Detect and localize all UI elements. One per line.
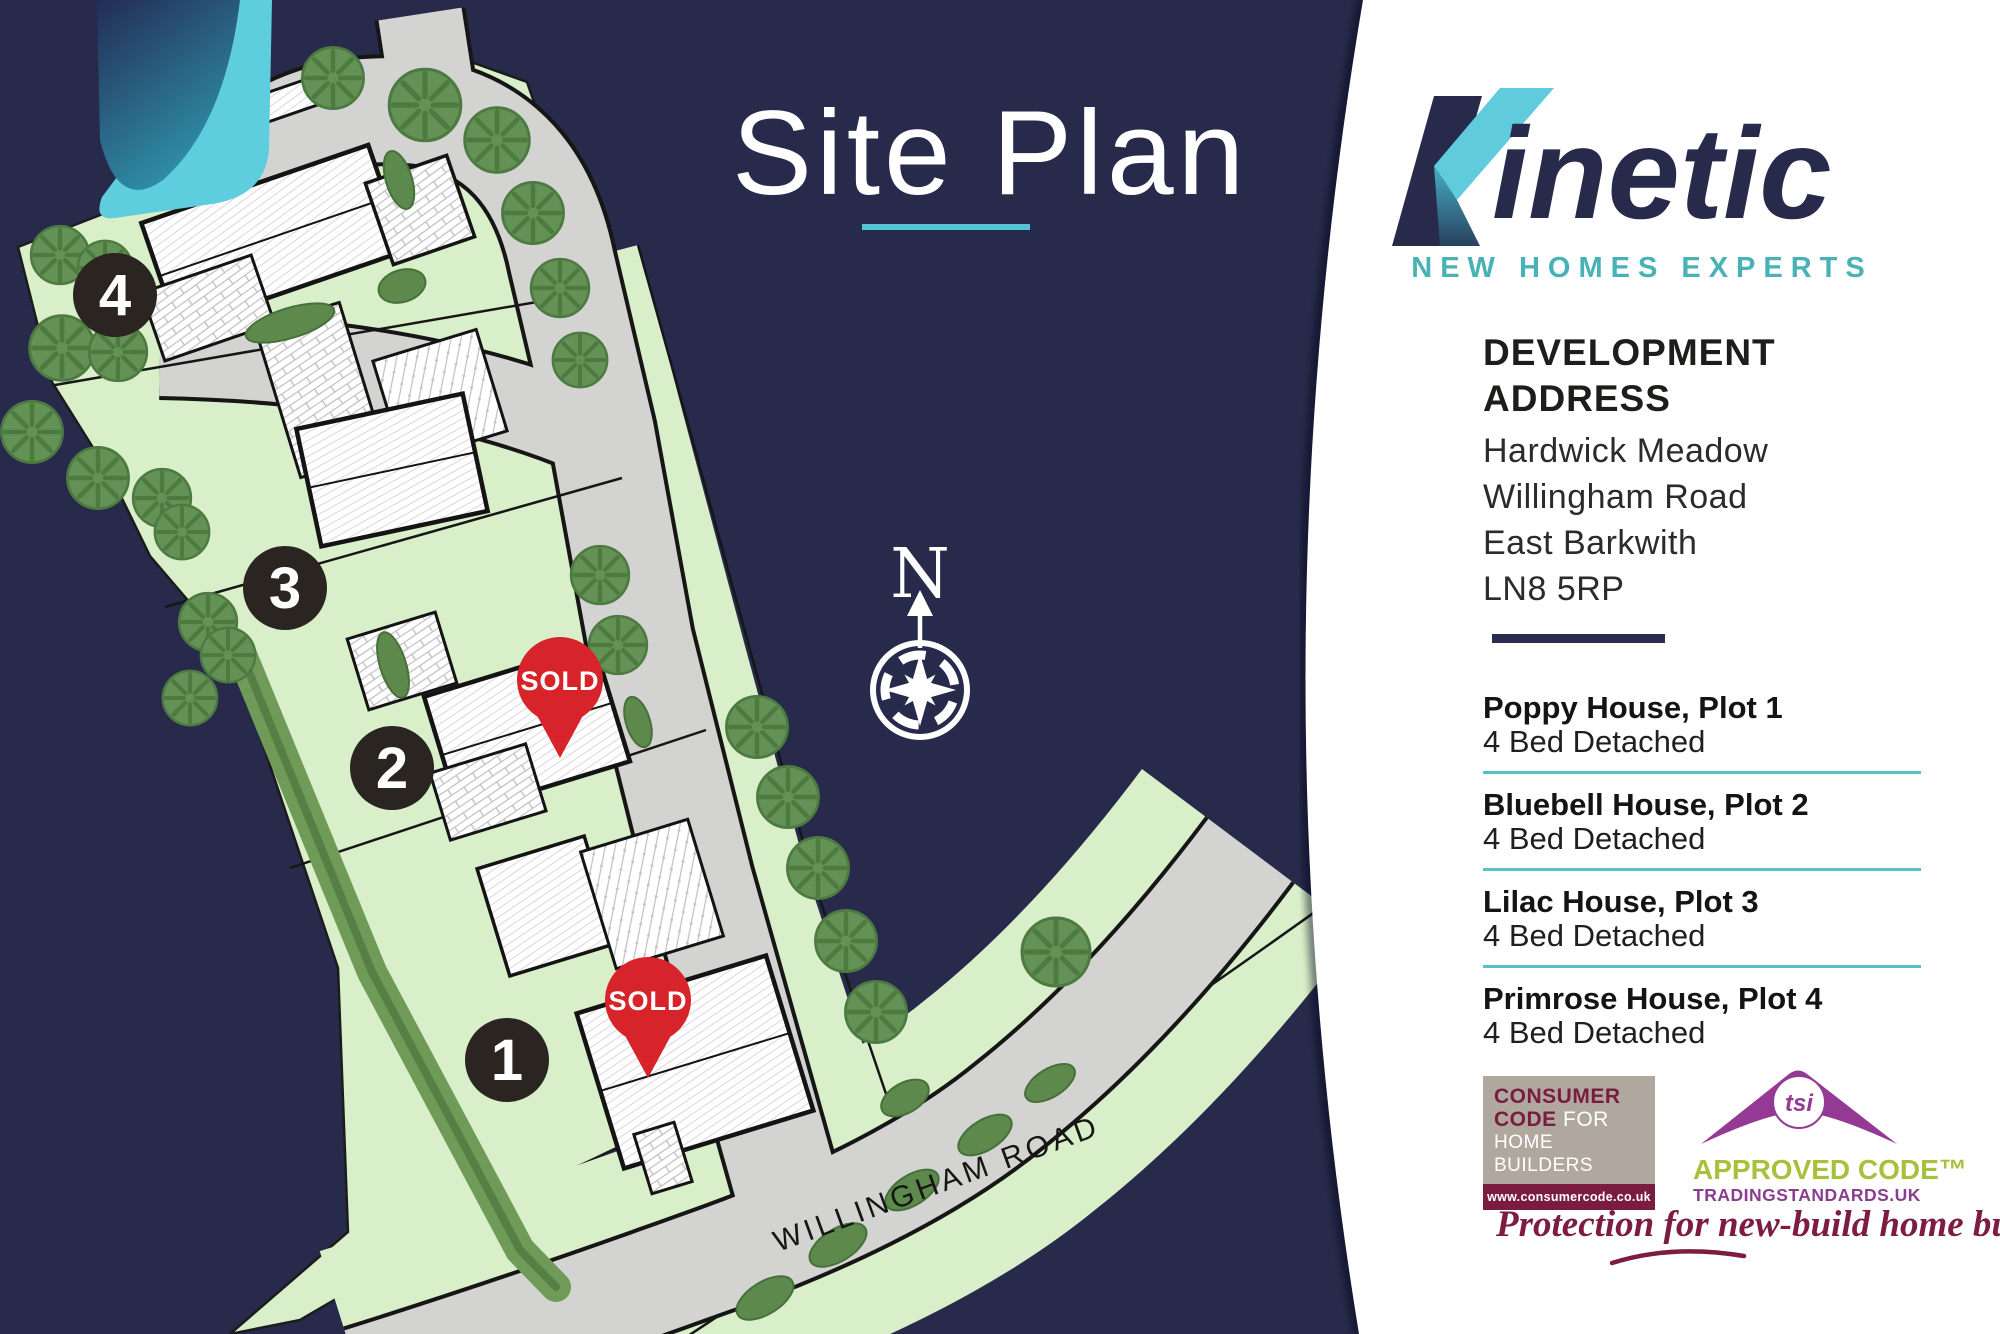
development-heading-line2: ADDRESS <box>1483 376 1776 422</box>
site-plan-flyer: 4 3 2 1 SOLD SOLD WILLINGHAM ROAD N <box>0 0 2000 1334</box>
ribbon-decoration <box>97 0 272 218</box>
plot-list-item-4: Primrose House, Plot 4 4 Bed Detached <box>1483 981 1921 1062</box>
consumer-code-line3: HOME BUILDERS <box>1494 1131 1644 1177</box>
consumer-code-badge: CONSUMER CODE FOR HOME BUILDERS www.cons… <box>1483 1076 1655 1210</box>
development-address: Hardwick Meadow Willingham Road East Bar… <box>1483 428 1768 612</box>
plot-marker-2: 2 <box>350 726 434 810</box>
development-heading-line1: DEVELOPMENT <box>1483 330 1776 376</box>
plot-spec: 4 Bed Detached <box>1483 919 1921 952</box>
plot-list-item-1: Poppy House, Plot 1 4 Bed Detached <box>1483 690 1921 774</box>
plot-marker-4: 4 <box>73 253 157 337</box>
address-line: LN8 5RP <box>1483 566 1768 612</box>
plot-spec: 4 Bed Detached <box>1483 822 1921 855</box>
logo-wordmark: inetic <box>1492 100 1832 246</box>
plot-spec: 4 Bed Detached <box>1483 725 1921 758</box>
svg-text:4: 4 <box>99 263 131 328</box>
plot-marker-1: 1 <box>465 1018 549 1102</box>
svg-text:2: 2 <box>376 736 408 801</box>
consumer-code-line2-bold: CODE <box>1494 1108 1557 1131</box>
svg-text:SOLD: SOLD <box>608 986 687 1016</box>
address-line: East Barkwith <box>1483 520 1768 566</box>
kinetic-logo: inetic <box>1382 86 1902 254</box>
plot-list-item-3: Lilac House, Plot 3 4 Bed Detached <box>1483 884 1921 968</box>
plot-name: Poppy House, Plot 1 <box>1483 690 1921 725</box>
plot-name: Lilac House, Plot 3 <box>1483 884 1921 919</box>
tsi-approved-code-text: APPROVED CODE™ <box>1693 1155 1905 1185</box>
development-address-heading: DEVELOPMENT ADDRESS <box>1483 330 1776 422</box>
consumer-code-line2-rest: FOR <box>1557 1108 1609 1131</box>
plot-marker-3: 3 <box>243 546 327 630</box>
tagline-swoosh <box>1608 1248 1748 1268</box>
tsi-approved-code-badge: tsi APPROVED CODE™ TRADINGSTANDARDS.UK <box>1693 1064 1905 1206</box>
plot-name: Primrose House, Plot 4 <box>1483 981 1921 1016</box>
protection-tagline: Protection for new-build home buyers <box>1496 1203 2000 1246</box>
svg-text:1: 1 <box>491 1028 523 1093</box>
page-title: Site Plan <box>732 84 1248 222</box>
certification-badges: CONSUMER CODE FOR HOME BUILDERS www.cons… <box>1483 1076 1905 1210</box>
plot-list-item-2: Bluebell House, Plot 2 4 Bed Detached <box>1483 787 1921 871</box>
brand-tagline: NEW HOMES EXPERTS <box>1382 252 1902 285</box>
tsi-roof-icon: tsi <box>1693 1064 1905 1150</box>
section-divider <box>1492 634 1665 643</box>
svg-text:SOLD: SOLD <box>520 666 599 696</box>
address-line: Willingham Road <box>1483 474 1768 520</box>
consumer-code-line1: CONSUMER <box>1494 1085 1644 1108</box>
tsi-monogram: tsi <box>1785 1090 1814 1117</box>
plot-spec: 4 Bed Detached <box>1483 1016 1921 1049</box>
svg-text:3: 3 <box>269 556 301 621</box>
address-line: Hardwick Meadow <box>1483 428 1768 474</box>
title-underline <box>862 224 1030 230</box>
plot-list: Poppy House, Plot 1 4 Bed Detached Blueb… <box>1483 690 1921 1075</box>
plot-name: Bluebell House, Plot 2 <box>1483 787 1921 822</box>
